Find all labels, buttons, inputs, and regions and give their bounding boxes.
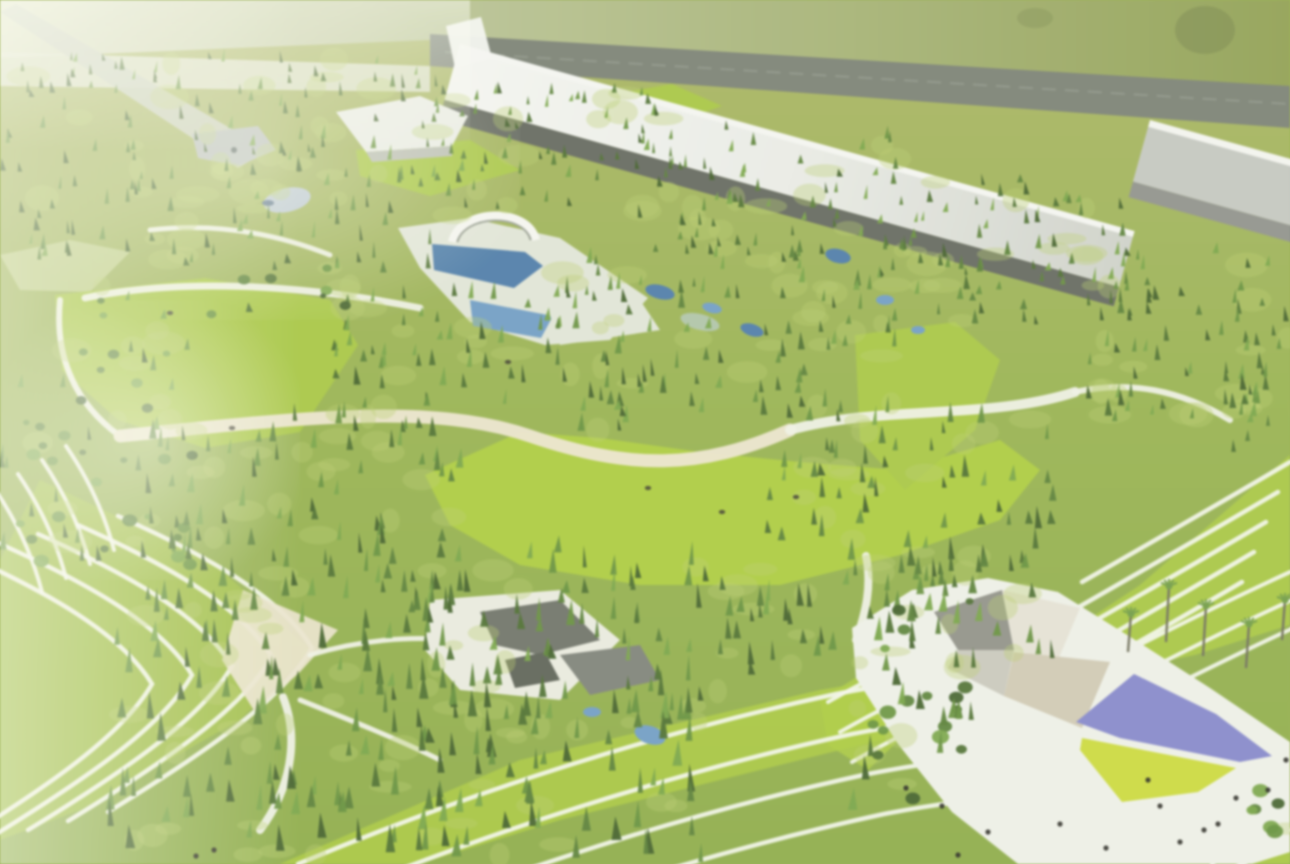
scene [0, 0, 1290, 864]
park-rendering-canvas [0, 0, 1290, 864]
haze-veil [0, 0, 1290, 864]
park-rendering [0, 0, 1290, 864]
